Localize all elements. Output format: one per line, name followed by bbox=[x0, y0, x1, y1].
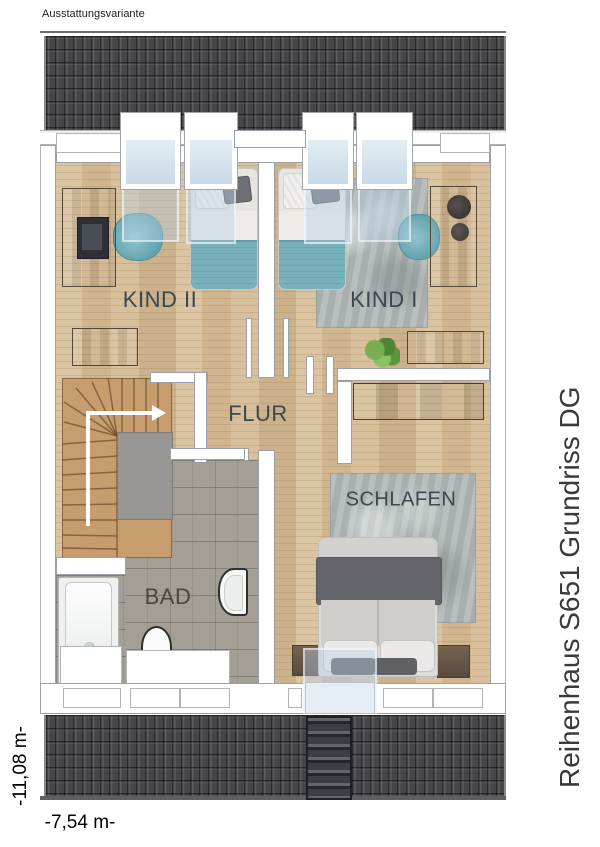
room-label-kind1: KIND I bbox=[350, 287, 418, 313]
plan-title-vertical: Reihenhaus S651 Grundriss DG bbox=[544, 372, 596, 802]
skylight-overlay-3 bbox=[304, 190, 352, 244]
bottom-window-3 bbox=[288, 688, 302, 708]
window-glass bbox=[307, 139, 349, 185]
desk-pot bbox=[451, 223, 469, 241]
eave-line-bottom bbox=[40, 796, 506, 800]
door-jamb-corridor-b bbox=[326, 356, 334, 394]
bottom-window-1 bbox=[63, 688, 121, 708]
ridge-line-top bbox=[40, 31, 506, 33]
desk-lamp bbox=[447, 195, 471, 219]
sideboard-kind1 bbox=[407, 331, 484, 364]
pillow-dark-right bbox=[373, 658, 417, 675]
top-right-window bbox=[440, 133, 490, 153]
dormer-window-4 bbox=[356, 112, 413, 190]
door-jamb-bath bbox=[244, 448, 249, 461]
dormer-window-2 bbox=[184, 112, 238, 190]
bed-bench-right bbox=[437, 645, 470, 678]
stairwell-void bbox=[117, 432, 173, 520]
wall-outer-right bbox=[490, 145, 506, 712]
bed-dark-runner bbox=[316, 557, 442, 605]
washbasin bbox=[218, 568, 248, 616]
bath-cabinet-left bbox=[60, 646, 122, 686]
room-label-flur: FLUR bbox=[228, 401, 287, 427]
dimension-width: -7,54 m- bbox=[40, 812, 120, 836]
window-glass bbox=[125, 139, 176, 185]
roof-ladder bbox=[306, 716, 352, 800]
bed-blanket bbox=[191, 240, 257, 289]
bottom-window-2 bbox=[130, 688, 230, 708]
wall-bath-right bbox=[258, 450, 275, 701]
skylight-overlay-1 bbox=[122, 190, 179, 242]
wall-outer-left bbox=[40, 145, 56, 712]
desk-kind1 bbox=[430, 186, 477, 287]
roof-top bbox=[44, 36, 506, 130]
wall-bath-top bbox=[170, 448, 246, 460]
wall-stairs-bottom bbox=[56, 557, 126, 575]
room-label-schlafen: SCHLAFEN bbox=[346, 489, 457, 512]
dimension-height: -11,08 m- bbox=[6, 722, 36, 810]
door-jamb-kind1 bbox=[283, 318, 289, 378]
skylight-overlay-4 bbox=[358, 190, 411, 242]
roof-bottom bbox=[44, 715, 506, 796]
wall-party-kids bbox=[258, 147, 275, 378]
top-left-window bbox=[56, 133, 128, 153]
bottom-dormer-glass bbox=[305, 682, 375, 714]
skylight-overlay-2 bbox=[186, 190, 236, 244]
dormer-window-1 bbox=[120, 112, 181, 190]
wardrobe-schlafen bbox=[353, 383, 484, 420]
room-label-kind2: KIND II bbox=[123, 287, 197, 313]
variant-label: Ausstattungsvariante bbox=[42, 8, 145, 20]
window-glass bbox=[189, 139, 233, 185]
laptop bbox=[77, 217, 109, 259]
window-glass bbox=[361, 139, 408, 185]
dresser-kind2 bbox=[72, 328, 138, 366]
party-wall-header bbox=[234, 130, 306, 148]
bottom-window-4 bbox=[383, 688, 483, 708]
plant bbox=[364, 338, 400, 368]
door-jamb-kind2 bbox=[246, 318, 252, 378]
bed-blanket bbox=[279, 240, 345, 289]
dormer-window-3 bbox=[302, 112, 354, 190]
door-jamb-corridor-a bbox=[306, 356, 314, 394]
wall-schlafen-left bbox=[337, 381, 352, 464]
wall-schlafen-top bbox=[337, 368, 490, 381]
room-label-bad: BAD bbox=[145, 584, 192, 610]
floor-plan-canvas: Ausstattungsvariante bbox=[0, 0, 600, 847]
desk-kind2 bbox=[62, 188, 116, 287]
